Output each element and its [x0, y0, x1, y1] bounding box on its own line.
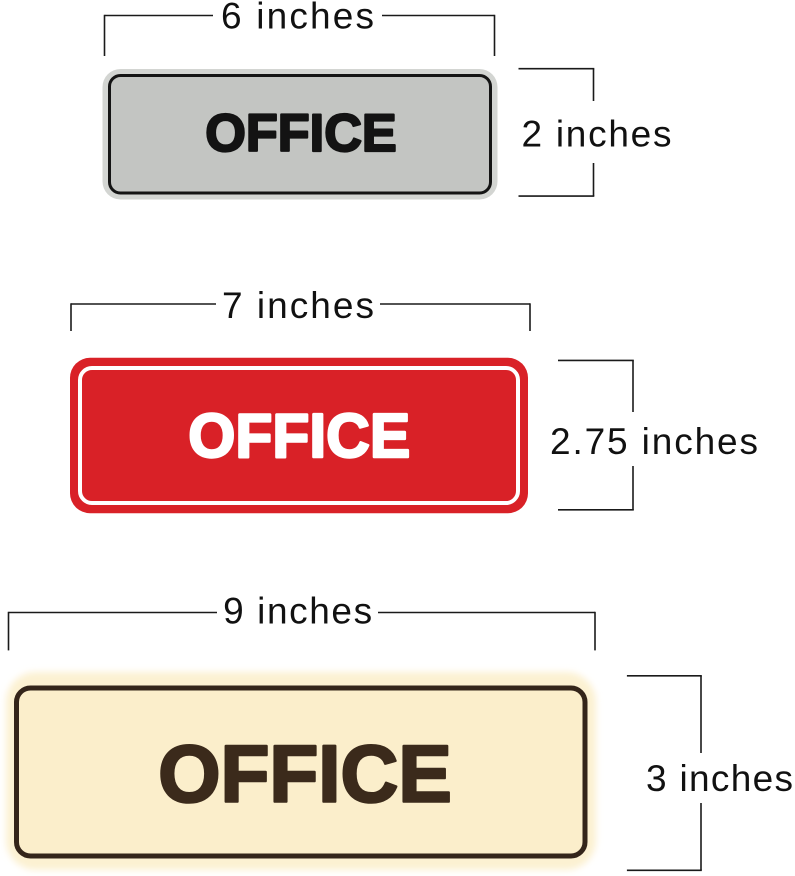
svg-text:OFFICE: OFFICE	[205, 104, 397, 163]
svg-text:2.75 inches: 2.75 inches	[550, 421, 758, 462]
svg-text:2 inches: 2 inches	[522, 114, 672, 155]
svg-text:9 inches: 9 inches	[223, 590, 372, 631]
svg-text:7 inches: 7 inches	[222, 285, 374, 326]
svg-text:6 inches: 6 inches	[221, 0, 374, 37]
svg-text:OFFICE: OFFICE	[158, 729, 452, 819]
svg-text:OFFICE: OFFICE	[188, 402, 410, 471]
svg-text:3 inches: 3 inches	[646, 758, 793, 799]
